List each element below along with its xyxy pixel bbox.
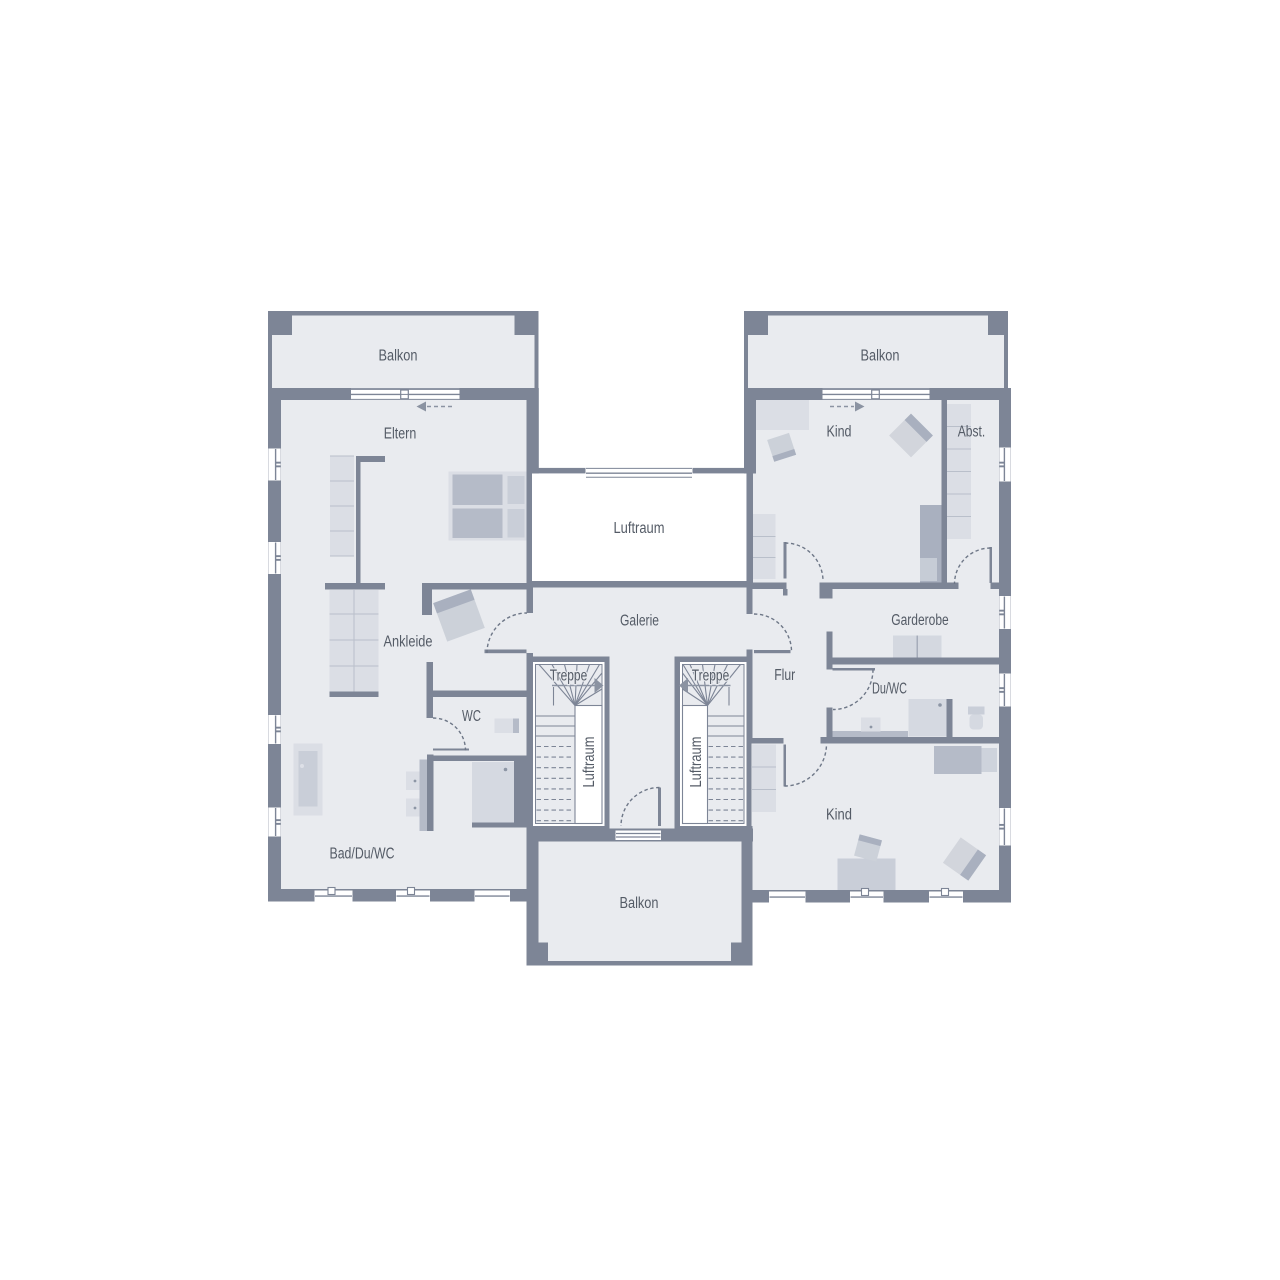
svg-text:Flur: Flur [774, 667, 795, 684]
svg-text:Bad/Du/WC: Bad/Du/WC [330, 845, 395, 862]
svg-text:Ankleide: Ankleide [384, 633, 433, 650]
svg-text:Du/WC: Du/WC [872, 680, 907, 697]
svg-text:Kind: Kind [826, 806, 852, 823]
svg-text:Luftraum: Luftraum [581, 737, 598, 788]
svg-text:Garderobe: Garderobe [891, 612, 949, 629]
svg-text:Treppe: Treppe [550, 667, 588, 684]
svg-text:Balkon: Balkon [861, 347, 900, 364]
svg-text:Luftraum: Luftraum [688, 737, 705, 788]
svg-text:Luftraum: Luftraum [614, 520, 665, 537]
svg-text:Balkon: Balkon [620, 895, 659, 912]
svg-text:Abst.: Abst. [958, 423, 986, 440]
svg-text:Balkon: Balkon [379, 347, 418, 364]
svg-text:Eltern: Eltern [384, 425, 417, 442]
svg-text:Treppe: Treppe [692, 667, 730, 684]
svg-text:Galerie: Galerie [620, 612, 659, 629]
svg-text:WC: WC [462, 708, 481, 725]
svg-text:Kind: Kind [827, 423, 852, 440]
